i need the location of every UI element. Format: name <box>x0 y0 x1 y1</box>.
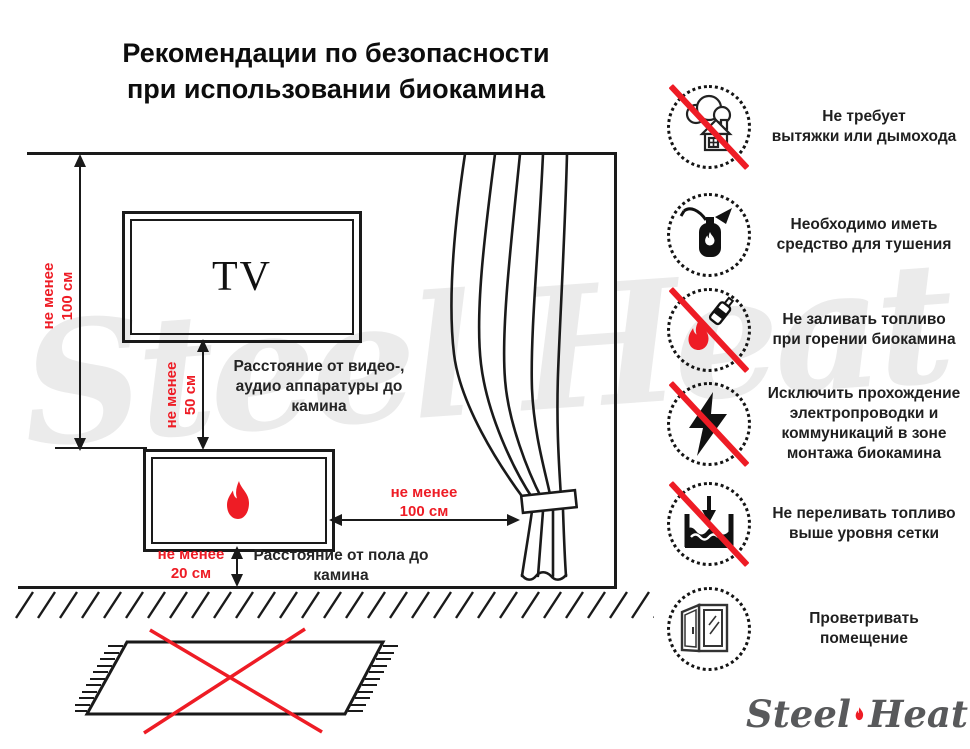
logo-flame-icon <box>854 693 865 735</box>
dim-label-50cm: не менее 50 см <box>163 335 199 455</box>
dim-label-20cm: не менее 20 см <box>149 546 233 584</box>
dim-arrow-100cm-vertical <box>79 156 81 449</box>
flame-icon <box>222 479 256 523</box>
logo-heat-text: Heat <box>868 692 968 736</box>
dim-label-100cm-vertical: не менее 100 см <box>40 235 76 357</box>
no-chimney-icon <box>667 85 751 169</box>
dim-arrow-20cm <box>236 548 238 585</box>
rule-extinguisher: Необходимо иметь средство для тушения <box>667 192 967 278</box>
steelheat-logo: Steel Heat <box>746 684 968 744</box>
extinguisher-icon <box>667 193 751 277</box>
note-floor-distance: Расстояние от пола до камина <box>247 546 435 586</box>
rule-ventilate-room: Проветривать помещение <box>667 586 967 672</box>
no-refuel-while-burning-icon <box>667 288 751 372</box>
rule-no-chimney: Не требует вытяжки или дымохода <box>667 84 967 170</box>
logo-steel-text: Steel <box>746 692 851 736</box>
rule-no-refuel-while-burning: Не заливать топливо при горении биокамин… <box>667 287 967 373</box>
ventilate-room-icon <box>667 587 751 671</box>
rule-label: Проветривать помещение <box>761 609 967 649</box>
dim-arrow-50cm <box>202 341 204 448</box>
rule-label: Не заливать топливо при горении биокамин… <box>761 310 967 350</box>
no-overfill-icon <box>667 482 751 566</box>
wall-line <box>614 152 617 589</box>
floor-hatching <box>14 589 654 619</box>
tv-label: TV <box>212 253 272 301</box>
note-av-distance: Расстояние от видео-, аудио аппаратуры д… <box>213 357 425 416</box>
rule-label: Не требует вытяжки или дымохода <box>761 107 967 147</box>
rule-label: Необходимо иметь средство для тушения <box>761 215 967 255</box>
curtain <box>448 154 578 586</box>
rule-no-overfill: Не переливать топливо выше уровня сетки <box>667 481 967 567</box>
infographic-poster: Steel Heat Рекомендации по безопасности … <box>0 0 970 749</box>
fireplace-top-extension-line <box>55 447 147 449</box>
fireplace-box <box>143 449 335 552</box>
page-title: Рекомендации по безопасности при использ… <box>30 36 642 107</box>
no-carpet-figure <box>75 618 405 743</box>
rule-label: Не переливать топливо выше уровня сетки <box>761 504 967 544</box>
no-electrical-wiring-icon <box>667 382 751 466</box>
tv-box: TV <box>122 211 362 343</box>
rule-label: Исключить прохождение электропроводки и … <box>761 384 967 463</box>
rule-no-electrical-wiring: Исключить прохождение электропроводки и … <box>667 381 967 467</box>
